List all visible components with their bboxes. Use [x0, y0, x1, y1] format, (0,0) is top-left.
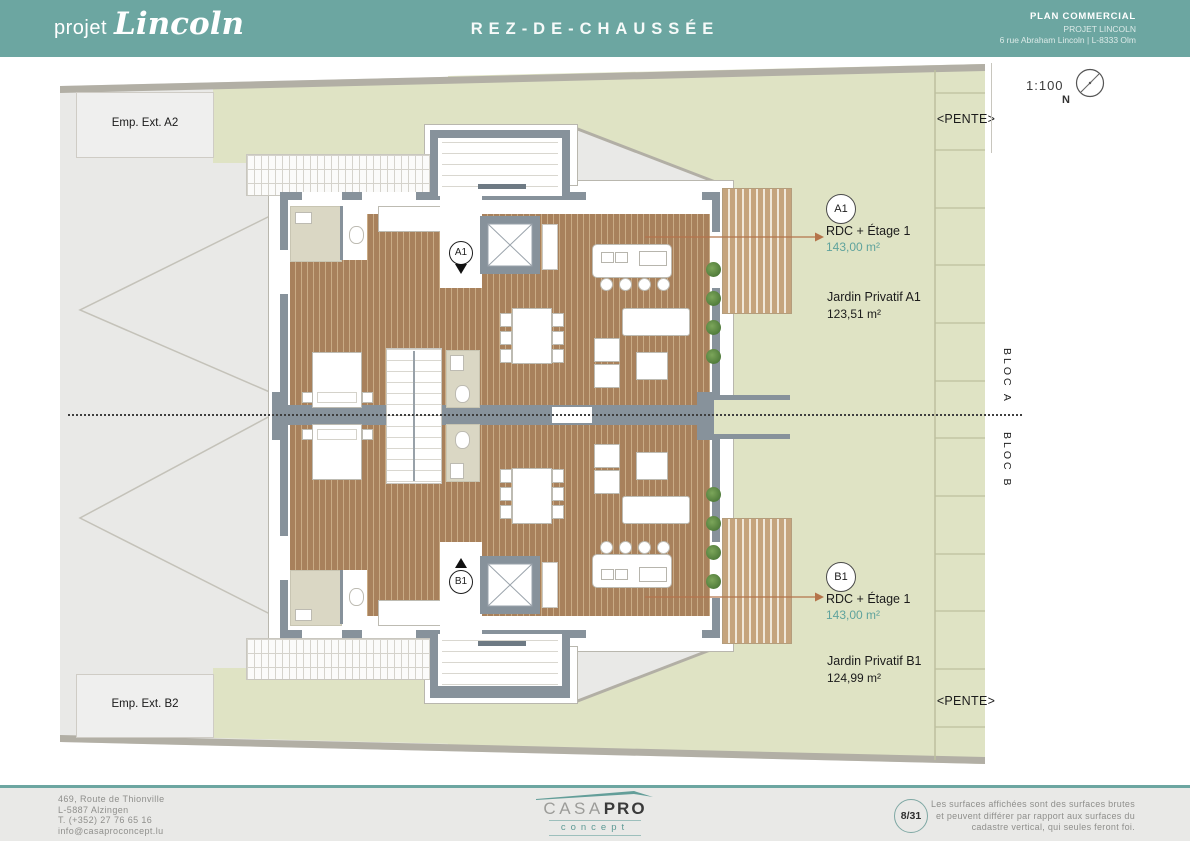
unit-b-badge: B1 [826, 562, 856, 592]
logo-wordmark: CASAPRO [528, 800, 662, 817]
slope-label-top: <PENTE> [936, 112, 996, 126]
unit-a-marker: A1 [449, 241, 473, 265]
header-bar: projet Lincoln REZ-DE-CHAUSSÉE PLAN COMM… [0, 0, 1190, 57]
company-address: 469, Route de Thionville L-5887 Alzingen… [58, 794, 165, 836]
scale-label: 1:100 [1026, 78, 1064, 93]
unit-a-area: 143,00 m² [826, 240, 880, 254]
address-line: info@casaproconcept.lu [58, 826, 165, 837]
doc-type: PLAN COMMERCIAL [1000, 11, 1136, 22]
unit-a-garden-area: 123,51 m² [827, 307, 881, 321]
bloc-b-label: BLOC B [1001, 432, 1013, 489]
disclaimer: Les surfaces affichées sont des surfaces… [931, 799, 1135, 834]
unit-b-area: 143,00 m² [826, 608, 880, 622]
unit-b-entrance-arrow-icon [455, 558, 467, 568]
parcel-division-line [68, 414, 1022, 416]
logo-part-casa: CASA [543, 799, 603, 818]
logo-subtitle: concept [549, 820, 641, 836]
logo-part-pro: PRO [604, 799, 647, 818]
slope-label-bottom: <PENTE> [936, 694, 996, 708]
project-address: 6 rue Abraham Lincoln | L-8333 Olm [1000, 35, 1136, 45]
disclaimer-line: cadastre vertical, qui seules feront foi… [931, 822, 1135, 834]
unit-a-garden-label: Jardin Privatif A1 [827, 290, 921, 304]
page-indicator: 8/31 [894, 799, 928, 833]
project-name: PROJET LINCOLN [1000, 24, 1136, 34]
casapro-logo: CASAPRO concept [528, 791, 662, 836]
disclaimer-line: Les surfaces affichées sont des surfaces… [931, 799, 1135, 811]
bloc-a-label: BLOC A [1001, 348, 1013, 404]
address-line: 469, Route de Thionville [58, 794, 165, 805]
unit-b-floors: RDC + Étage 1 [826, 592, 910, 606]
unit-a-floors: RDC + Étage 1 [826, 224, 910, 238]
plan-commercial-page: projet Lincoln REZ-DE-CHAUSSÉE PLAN COMM… [0, 0, 1190, 841]
north-label: N [1062, 94, 1070, 106]
header-info-block: PLAN COMMERCIAL PROJET LINCOLN 6 rue Abr… [1000, 11, 1136, 45]
address-line: L-5887 Alzingen [58, 805, 165, 816]
parcel-tick [991, 63, 992, 153]
disclaimer-line: et peuvent différer par rapport aux surf… [931, 811, 1135, 823]
unit-a-entrance-arrow-icon [455, 264, 467, 274]
address-line: T. (+352) 27 76 65 16 [58, 815, 165, 826]
compass-icon [1071, 64, 1109, 102]
unit-b-marker: B1 [449, 570, 473, 594]
unit-b-garden-area: 124,99 m² [827, 671, 881, 685]
unit-a-badge: A1 [826, 194, 856, 224]
unit-b-garden-label: Jardin Privatif B1 [827, 654, 921, 668]
